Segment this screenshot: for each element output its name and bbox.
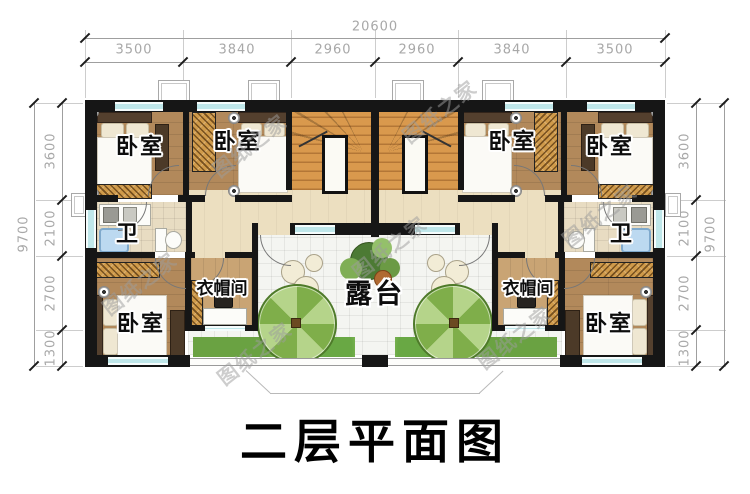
wall <box>492 223 498 237</box>
eave-line <box>270 393 480 394</box>
window <box>587 102 635 111</box>
wardrobe <box>590 262 655 278</box>
bed-headboard <box>97 112 152 123</box>
room-label-bath: 卫 <box>97 220 159 244</box>
extension-line <box>566 30 567 98</box>
floor-plan-sheet: 20600 3500 3840 2960 2960 3840 3500 9700… <box>0 0 750 494</box>
dim-top-total: 20600 <box>352 20 398 35</box>
window <box>505 102 553 111</box>
desk <box>203 308 247 325</box>
dim-top-seg-4: 2960 <box>398 43 435 58</box>
window <box>654 210 664 248</box>
flue-box <box>665 193 681 217</box>
wall <box>178 195 205 202</box>
bed-headboard <box>462 112 512 123</box>
bed-headboard <box>598 112 653 123</box>
dim-left-seg-2: 2100 <box>44 209 59 246</box>
extension-line <box>665 30 666 98</box>
terrace-chair <box>427 254 445 272</box>
wall <box>545 195 572 202</box>
wall <box>186 202 192 252</box>
wall <box>252 223 258 237</box>
wall <box>458 195 515 202</box>
room-label-bedroom: 卧室 <box>567 133 653 157</box>
terrace-railing <box>388 358 560 366</box>
room-label-bedroom: 卧室 <box>97 133 183 157</box>
dim-left-seg-4: 1300 <box>44 329 59 366</box>
wall <box>183 112 189 197</box>
wall <box>362 355 375 367</box>
dim-top-seg-6: 3500 <box>596 43 633 58</box>
window <box>582 357 642 365</box>
room-label-cloakroom: 衣帽间 <box>493 275 563 297</box>
dim-top-seg-1: 3500 <box>115 43 152 58</box>
dim-top-seg-5: 3840 <box>493 43 530 58</box>
room-label-terrace: 露台 <box>330 275 420 307</box>
dimension-line-right-total <box>724 103 725 366</box>
bedside-lamp <box>640 286 652 298</box>
dim-right-seg-4: 1300 <box>678 329 693 366</box>
dim-top-seg-3: 2960 <box>314 43 351 58</box>
party-wall <box>375 112 379 237</box>
extension-line <box>85 30 86 98</box>
window <box>86 210 96 248</box>
bedside-lamp <box>228 112 240 124</box>
window <box>197 102 245 111</box>
page-title: 二层平面图 <box>0 402 750 472</box>
wall <box>595 252 665 258</box>
window <box>115 102 163 111</box>
wall <box>85 195 118 202</box>
wall <box>375 355 388 367</box>
stair-void <box>322 135 348 194</box>
dim-left-seg-1: 3600 <box>44 132 59 169</box>
dim-left-total: 9700 <box>17 215 32 252</box>
dim-top-seg-2: 3840 <box>218 43 255 58</box>
dimension-line-left-total <box>34 103 35 366</box>
window <box>295 225 335 234</box>
dim-right-total: 9700 <box>704 215 719 252</box>
bedside-lamp <box>510 112 522 124</box>
wall <box>235 195 292 202</box>
extension-line <box>375 30 376 98</box>
dim-right-seg-3: 2700 <box>678 274 693 311</box>
terrace-chair <box>305 254 323 272</box>
dim-left-seg-3: 2700 <box>44 274 59 311</box>
wall <box>85 252 155 258</box>
room-label-bedroom: 卧室 <box>565 310 653 334</box>
parasol-pole <box>291 318 301 328</box>
toilet-bowl <box>165 231 182 249</box>
extension-line <box>291 30 292 98</box>
dim-right-seg-1: 3600 <box>678 132 693 169</box>
window <box>205 326 245 331</box>
dimension-line-top-total <box>85 38 665 39</box>
parasol-pole <box>449 318 459 328</box>
room-label-bedroom: 卧室 <box>464 128 561 152</box>
window <box>108 357 168 365</box>
room-label-cloakroom: 衣帽间 <box>187 275 257 297</box>
